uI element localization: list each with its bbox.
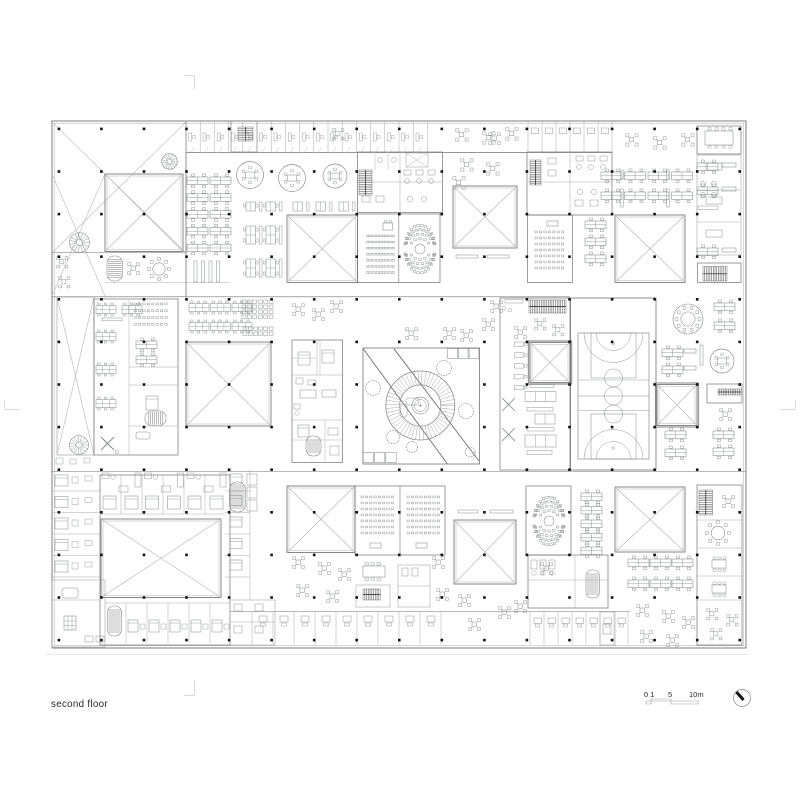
svg-text:10m: 10m (689, 690, 704, 699)
svg-text:5: 5 (668, 690, 672, 699)
svg-text:0 1: 0 1 (644, 690, 654, 699)
svg-text:second floor: second floor (51, 699, 108, 710)
